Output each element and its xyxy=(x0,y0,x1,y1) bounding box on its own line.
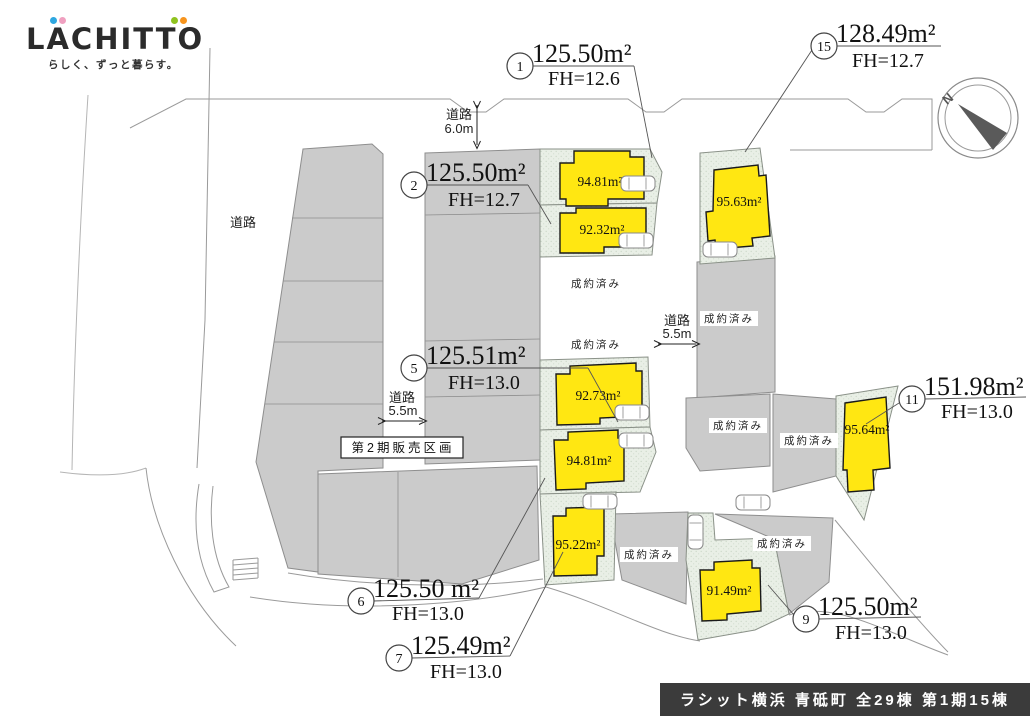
car-icon-vertical xyxy=(688,515,703,549)
svg-text:FH=12.7: FH=12.7 xyxy=(448,189,520,211)
svg-text:5: 5 xyxy=(411,362,418,377)
car-icon xyxy=(619,233,653,248)
svg-text:FH=13.0: FH=13.0 xyxy=(835,622,907,644)
car-icon xyxy=(621,176,655,191)
logo-dot-green-icon xyxy=(171,17,178,24)
svg-text:5.5m: 5.5m xyxy=(389,403,418,418)
svg-text:6: 6 xyxy=(358,595,365,610)
svg-text:125.50m²: 125.50m² xyxy=(532,39,632,68)
building-15-area: 95.63m² xyxy=(717,194,762,209)
annotation-15: 15 128.49m² FH=12.7 xyxy=(745,19,941,152)
car-icon xyxy=(615,405,649,420)
svg-text:15: 15 xyxy=(817,40,831,55)
svg-text:11: 11 xyxy=(905,393,918,408)
site-plan-page: 94.81m² 92.32m² 95.63m² 92.73m² 94.81m² … xyxy=(0,0,1030,728)
sold-label: 成約済み xyxy=(567,337,625,352)
svg-text:5.5m: 5.5m xyxy=(663,326,692,341)
logo: LACHITTO らしく、ずっと暮らす。 xyxy=(26,14,216,72)
outer-west-edge xyxy=(72,95,88,470)
svg-text:成約済み: 成約済み xyxy=(713,419,763,432)
svg-text:9: 9 xyxy=(803,613,810,628)
sold-label: 成約済み xyxy=(780,433,838,448)
phase2-label: 第2期販売区画 xyxy=(341,437,463,458)
svg-text:125.50m²: 125.50m² xyxy=(818,592,918,621)
svg-text:2: 2 xyxy=(411,179,418,194)
svg-text:FH=13.0: FH=13.0 xyxy=(430,661,502,683)
svg-text:125.51m²: 125.51m² xyxy=(426,341,526,370)
svg-text:成約済み: 成約済み xyxy=(571,277,621,290)
svg-text:成約済み: 成約済み xyxy=(757,537,807,550)
sold-label: 成約済み xyxy=(709,418,767,433)
compass: N xyxy=(938,78,1018,158)
road-label-west: 道路 xyxy=(230,215,256,230)
svg-text:125.50m²: 125.50m² xyxy=(426,158,526,187)
building-11-area: 95.64m² xyxy=(845,422,890,437)
road-label-inner-west: 道路 5.5m xyxy=(382,390,423,421)
svg-text:151.98m²: 151.98m² xyxy=(924,372,1024,401)
logo-dot-pink-icon xyxy=(59,17,66,24)
stairs-icon xyxy=(233,558,258,580)
svg-text:成約済み: 成約済み xyxy=(624,548,674,561)
building-6-area: 94.81m² xyxy=(567,453,612,468)
footer-banner: ラシット横浜 青砥町 全29棟 第1期15棟 xyxy=(660,683,1030,716)
svg-text:道路: 道路 xyxy=(446,107,472,122)
site-plan-svg: 94.81m² 92.32m² 95.63m² 92.73m² 94.81m² … xyxy=(0,0,1030,728)
svg-text:125.50 m²: 125.50 m² xyxy=(373,574,479,603)
svg-text:第2期販売区画: 第2期販売区画 xyxy=(352,440,455,455)
svg-text:成約済み: 成約済み xyxy=(704,312,754,325)
logo-dot-blue-icon xyxy=(50,17,57,24)
sold-label: 成約済み xyxy=(700,311,758,326)
car-icon xyxy=(703,242,737,257)
road-label-center: 道路 5.5m xyxy=(658,313,696,344)
building-5-area: 92.73m² xyxy=(576,388,621,403)
car-icon xyxy=(736,495,770,510)
svg-text:FH=12.6: FH=12.6 xyxy=(548,68,620,90)
sold-label: 成約済み xyxy=(567,276,625,291)
sold-lot-east-column xyxy=(697,256,775,398)
svg-text:7: 7 xyxy=(396,652,403,667)
sold-label: 成約済み xyxy=(753,536,811,551)
svg-text:FH=13.0: FH=13.0 xyxy=(392,603,464,625)
svg-text:成約済み: 成約済み xyxy=(571,338,621,351)
southwest-curve xyxy=(146,468,236,646)
building-1-area: 94.81m² xyxy=(578,174,623,189)
building-11 xyxy=(843,397,890,492)
road-label-top: 道路 6.0m xyxy=(445,105,477,145)
svg-text:125.49m²: 125.49m² xyxy=(411,631,511,660)
svg-text:128.49m²: 128.49m² xyxy=(836,19,936,48)
top-road-upper-edge xyxy=(130,99,932,150)
building-7-area: 95.22m² xyxy=(556,537,601,552)
car-icon xyxy=(583,494,617,509)
west-road-edge xyxy=(197,48,210,468)
svg-text:FH=13.0: FH=13.0 xyxy=(448,372,520,394)
svg-text:6.0m: 6.0m xyxy=(445,121,474,136)
building-2-area: 92.32m² xyxy=(580,222,625,237)
sliver-curve-a xyxy=(196,484,229,592)
building-9-area: 91.49m² xyxy=(707,583,752,598)
logo-dot-orange-icon xyxy=(180,17,187,24)
sold-label: 成約済み xyxy=(620,547,678,562)
sold-lot-south-block xyxy=(318,466,539,584)
svg-text:FH=12.7: FH=12.7 xyxy=(852,50,924,72)
car-icon xyxy=(619,433,653,448)
outer-southwest-curve xyxy=(60,468,146,475)
svg-text:FH=13.0: FH=13.0 xyxy=(941,401,1013,423)
svg-text:1: 1 xyxy=(517,60,524,75)
logo-tagline: らしく、ずっと暮らす。 xyxy=(48,57,216,72)
svg-text:成約済み: 成約済み xyxy=(784,434,834,447)
